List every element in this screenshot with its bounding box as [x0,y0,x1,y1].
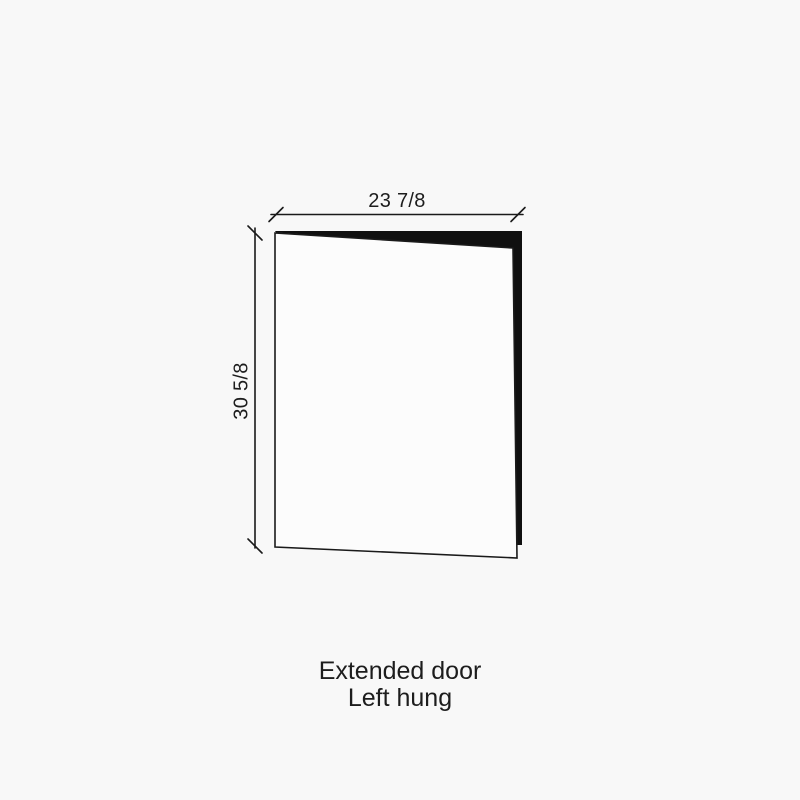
width-dimension-label: 23 7/8 [368,190,425,213]
caption-line-door-type: Extended door [0,658,800,685]
door-spec-page: 23 7/8 30 5/8 Extended door Left hung [0,0,800,800]
caption-line-hinge-side: Left hung [0,685,800,712]
door-front-face [275,233,517,558]
caption: Extended door Left hung [0,658,800,712]
height-dimension-label: 30 5/8 [231,362,254,419]
